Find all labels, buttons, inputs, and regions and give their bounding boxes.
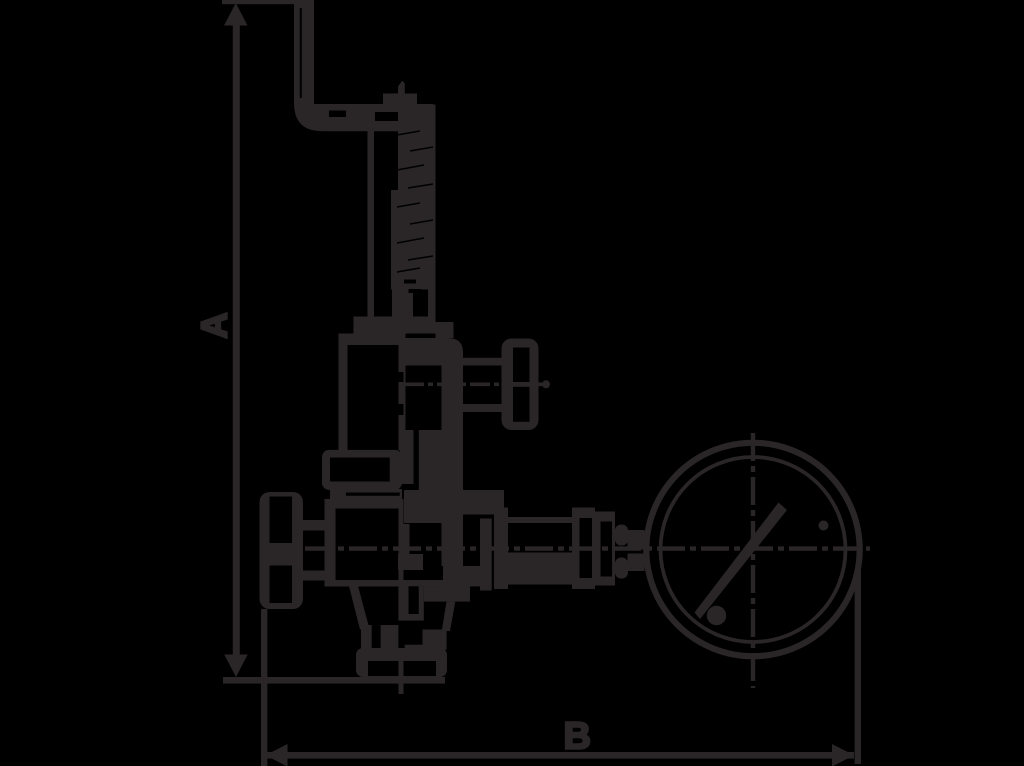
- svg-text:B: B: [564, 716, 591, 758]
- svg-text:A: A: [194, 313, 235, 339]
